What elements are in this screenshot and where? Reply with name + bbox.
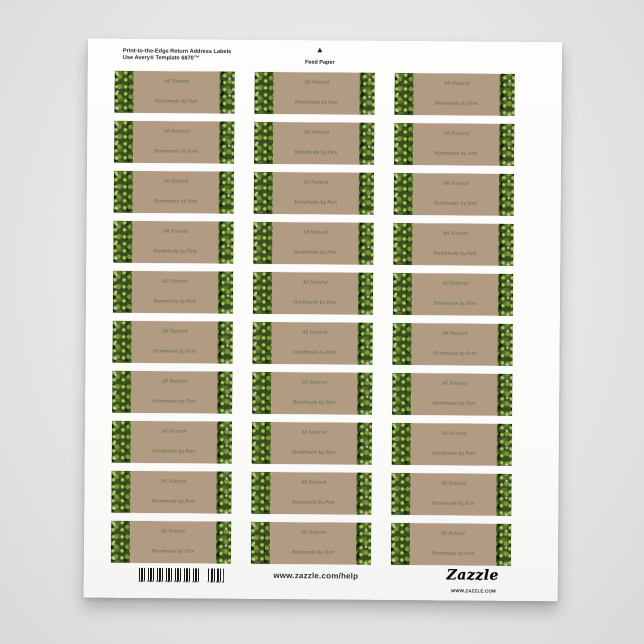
label: All Natural Handmade by Pam <box>392 423 512 466</box>
foliage-strip-right <box>496 524 511 566</box>
label-line1: All Natural <box>163 229 188 234</box>
foliage-strip-left <box>392 423 411 465</box>
foliage-strip-left <box>252 422 271 464</box>
label-line2: Handmade by Pam <box>152 499 195 504</box>
foliage-strip-left <box>111 471 130 513</box>
label: All Natural Handmade by Pam <box>112 421 232 464</box>
label-line1: All Natural <box>162 329 187 334</box>
foliage-strip-right <box>357 323 372 365</box>
label-line1: All Natural <box>444 132 469 137</box>
label-line1: All Natural <box>301 430 326 435</box>
foliage-strip-left <box>254 122 273 164</box>
foliage-strip-left <box>393 273 412 315</box>
label-center: All Natural Handmade by Pam <box>270 522 356 565</box>
label-center: All Natural Handmade by Pam <box>133 121 219 164</box>
label-line2: Handmade by Pam <box>154 199 197 204</box>
label-center: All Natural Handmade by Pam <box>271 422 357 465</box>
label-center: All Natural Handmade by Pam <box>411 323 497 366</box>
label-center: All Natural Handmade by Pam <box>413 73 499 116</box>
foliage-strip-right <box>357 373 372 415</box>
label-line1: All Natural <box>164 79 189 84</box>
label-line2: Handmade by Pam <box>293 300 336 305</box>
foliage-strip-left <box>114 171 133 213</box>
label-center: All Natural Handmade by Pam <box>271 372 357 415</box>
foliage-strip-left <box>113 221 132 263</box>
label-center: All Natural Handmade by Pam <box>132 271 218 314</box>
foliage-strip-left <box>253 272 272 314</box>
foliage-strip-right <box>498 274 513 316</box>
label: All Natural Handmade by Pam <box>252 422 372 465</box>
label-line2: Handmade by Pam <box>155 149 198 154</box>
foliage-strip-right <box>497 374 512 416</box>
label-center: All Natural Handmade by Pam <box>130 471 216 514</box>
label-line2: Handmade by Pam <box>432 451 475 456</box>
label-line1: All Natural <box>161 429 186 434</box>
foliage-strip-right <box>216 472 231 514</box>
label: All Natural Handmade by Pam <box>114 171 234 214</box>
foliage-strip-left <box>252 372 271 414</box>
foliage-strip-right <box>357 423 372 465</box>
label-line1: All Natural <box>303 180 328 185</box>
label-line1: All Natural <box>162 279 187 284</box>
label-center: All Natural Handmade by Pam <box>410 473 496 516</box>
label-line2: Handmade by Pam <box>292 500 335 505</box>
label-line2: Handmade by Pam <box>433 401 476 406</box>
foliage-strip-right <box>497 424 512 466</box>
label-center: All Natural Handmade by Pam <box>411 373 497 416</box>
label-center: All Natural Handmade by Pam <box>133 71 219 114</box>
label: All Natural Handmade by Pam <box>114 71 234 114</box>
foliage-strip-right <box>359 73 374 115</box>
foliage-strip-right <box>496 474 511 516</box>
foliage-strip-right <box>216 522 231 564</box>
label-line1: All Natural <box>162 379 187 384</box>
label: All Natural Handmade by Pam <box>391 523 511 566</box>
label-center: All Natural Handmade by Pam <box>130 521 216 564</box>
brand-logo-subtext: WWW.ZAZZLE.COM <box>451 588 496 593</box>
foliage-strip-right <box>358 273 373 315</box>
label-line2: Handmade by Pam <box>153 349 196 354</box>
label: All Natural Handmade by Pam <box>111 521 231 564</box>
label-line1: All Natural <box>444 82 469 87</box>
foliage-strip-right <box>217 372 232 414</box>
foliage-strip-right <box>219 72 234 114</box>
foliage-strip-left <box>394 173 413 215</box>
foliage-strip-left <box>392 323 411 365</box>
label-line2: Handmade by Pam <box>155 99 198 104</box>
label-center: All Natural Handmade by Pam <box>413 123 499 166</box>
label-line2: Handmade by Pam <box>431 551 474 556</box>
foliage-strip-right <box>356 523 371 565</box>
label: All Natural Handmade by Pam <box>254 172 374 215</box>
label: All Natural Handmade by Pam <box>394 123 514 166</box>
label-line2: Handmade by Pam <box>433 301 476 306</box>
label: All Natural Handmade by Pam <box>254 72 374 115</box>
label: All Natural Handmade by Pam <box>393 223 513 266</box>
label-line1: All Natural <box>441 532 466 537</box>
foliage-strip-right <box>219 172 234 214</box>
label: All Natural Handmade by Pam <box>112 321 232 364</box>
label: All Natural Handmade by Pam <box>251 522 371 565</box>
label-line2: Handmade by Pam <box>433 351 476 356</box>
label: All Natural Handmade by Pam <box>114 121 234 164</box>
foliage-strip-left <box>111 521 130 563</box>
foliage-strip-left <box>113 271 132 313</box>
foliage-strip-left <box>254 172 273 214</box>
label-line1: All Natural <box>443 182 468 187</box>
label: All Natural Handmade by Pam <box>253 222 373 265</box>
label: All Natural Handmade by Pam <box>251 472 371 515</box>
feed-paper-arrow-icon: ▲ <box>88 45 552 57</box>
label-line2: Handmade by Pam <box>292 450 335 455</box>
label-center: All Natural Handmade by Pam <box>271 322 357 365</box>
label-line1: All Natural <box>441 432 466 437</box>
label-line2: Handmade by Pam <box>435 101 478 106</box>
label-center: All Natural Handmade by Pam <box>132 221 218 264</box>
label-center: All Natural Handmade by Pam <box>413 173 499 216</box>
label: All Natural Handmade by Pam <box>252 322 372 365</box>
label-line1: All Natural <box>161 529 186 534</box>
label: All Natural Handmade by Pam <box>392 373 512 416</box>
product-photo-stage: Print-to-the-Edge Return Address Labels … <box>0 0 644 644</box>
foliage-strip-left <box>252 322 271 364</box>
label-line2: Handmade by Pam <box>432 501 475 506</box>
label-center: All Natural Handmade by Pam <box>273 72 359 115</box>
label-line1: All Natural <box>164 129 189 134</box>
foliage-strip-right <box>219 122 234 164</box>
label-line1: All Natural <box>443 232 468 237</box>
label: All Natural Handmade by Pam <box>252 372 372 415</box>
label-line1: All Natural <box>441 482 466 487</box>
foliage-strip-right <box>218 222 233 264</box>
label-line2: Handmade by Pam <box>153 399 196 404</box>
foliage-strip-left <box>251 472 270 514</box>
label-grid: All Natural Handmade by Pam All Natural … <box>111 71 515 566</box>
label-center: All Natural Handmade by Pam <box>131 421 217 464</box>
label-line1: All Natural <box>161 479 186 484</box>
foliage-strip-right <box>359 173 374 215</box>
label-line2: Handmade by Pam <box>291 550 334 555</box>
label-center: All Natural Handmade by Pam <box>412 223 498 266</box>
label: All Natural Handmade by Pam <box>111 471 231 514</box>
label: All Natural Handmade by Pam <box>394 173 514 216</box>
label-line1: All Natural <box>304 130 329 135</box>
label-line1: All Natural <box>442 332 467 337</box>
label: All Natural Handmade by Pam <box>393 273 513 316</box>
label-line2: Handmade by Pam <box>295 100 338 105</box>
foliage-strip-right <box>217 322 232 364</box>
foliage-strip-left <box>112 321 131 363</box>
foliage-strip-right <box>356 473 371 515</box>
label-center: All Natural Handmade by Pam <box>131 371 217 414</box>
brand-logo-text: Zazzle <box>433 568 513 583</box>
label-line1: All Natural <box>302 280 327 285</box>
foliage-strip-left <box>391 523 410 565</box>
foliage-strip-left <box>114 121 133 163</box>
label: All Natural Handmade by Pam <box>113 221 233 264</box>
label-center: All Natural Handmade by Pam <box>411 423 497 466</box>
label-line1: All Natural <box>163 179 188 184</box>
foliage-strip-right <box>358 223 373 265</box>
label-center: All Natural Handmade by Pam <box>410 523 496 566</box>
foliage-strip-right <box>499 124 514 166</box>
foliage-strip-right <box>499 74 514 116</box>
label-center: All Natural Handmade by Pam <box>272 272 358 315</box>
foliage-strip-left <box>394 73 413 115</box>
foliage-strip-left <box>392 373 411 415</box>
label: All Natural Handmade by Pam <box>113 271 233 314</box>
label: All Natural Handmade by Pam <box>254 122 374 165</box>
label-line2: Handmade by Pam <box>435 151 478 156</box>
foliage-strip-left <box>112 371 131 413</box>
label-line2: Handmade by Pam <box>293 400 336 405</box>
label-center: All Natural Handmade by Pam <box>272 222 358 265</box>
foliage-strip-left <box>253 222 272 264</box>
label-line2: Handmade by Pam <box>293 350 336 355</box>
label: All Natural Handmade by Pam <box>392 323 512 366</box>
foliage-strip-right <box>217 422 232 464</box>
foliage-strip-right <box>498 224 513 266</box>
foliage-strip-right <box>218 272 233 314</box>
label-line2: Handmade by Pam <box>294 250 337 255</box>
label-center: All Natural Handmade by Pam <box>270 472 356 515</box>
label-center: All Natural Handmade by Pam <box>273 122 359 165</box>
foliage-strip-right <box>499 174 514 216</box>
label-sheet: Print-to-the-Edge Return Address Labels … <box>84 39 562 602</box>
label-center: All Natural Handmade by Pam <box>133 171 219 214</box>
label-line2: Handmade by Pam <box>434 251 477 256</box>
label-line1: All Natural <box>442 282 467 287</box>
label-line1: All Natural <box>303 230 328 235</box>
label-line1: All Natural <box>302 380 327 385</box>
label-line1: All Natural <box>442 382 467 387</box>
foliage-strip-right <box>497 324 512 366</box>
label-line1: All Natural <box>301 480 326 485</box>
label-line1: All Natural <box>302 330 327 335</box>
foliage-strip-left <box>394 123 413 165</box>
label-line2: Handmade by Pam <box>153 299 196 304</box>
label-line1: All Natural <box>304 80 329 85</box>
label: All Natural Handmade by Pam <box>112 371 232 414</box>
label-line2: Handmade by Pam <box>154 249 197 254</box>
label-line2: Handmade by Pam <box>434 201 477 206</box>
label-line2: Handmade by Pam <box>152 449 195 454</box>
feed-paper-label: Feed Paper <box>305 59 335 65</box>
feed-paper-marker: ▲ Feed Paper <box>88 45 552 75</box>
foliage-strip-right <box>359 123 374 165</box>
foliage-strip-left <box>251 522 270 564</box>
foliage-strip-left <box>391 473 410 515</box>
label-line1: All Natural <box>301 530 326 535</box>
label: All Natural Handmade by Pam <box>391 473 511 516</box>
foliage-strip-left <box>114 71 133 113</box>
label-line2: Handmade by Pam <box>151 549 194 554</box>
brand-logo: Zazzle WWW.ZAZZLE.COM <box>433 568 513 601</box>
label-line2: Handmade by Pam <box>294 200 337 205</box>
label-center: All Natural Handmade by Pam <box>131 321 217 364</box>
foliage-strip-left <box>112 421 131 463</box>
label-center: All Natural Handmade by Pam <box>273 172 359 215</box>
foliage-strip-left <box>393 223 412 265</box>
label: All Natural Handmade by Pam <box>253 272 373 315</box>
label: All Natural Handmade by Pam <box>394 73 514 116</box>
label-line2: Handmade by Pam <box>295 150 338 155</box>
foliage-strip-left <box>254 72 273 114</box>
label-center: All Natural Handmade by Pam <box>412 273 498 316</box>
